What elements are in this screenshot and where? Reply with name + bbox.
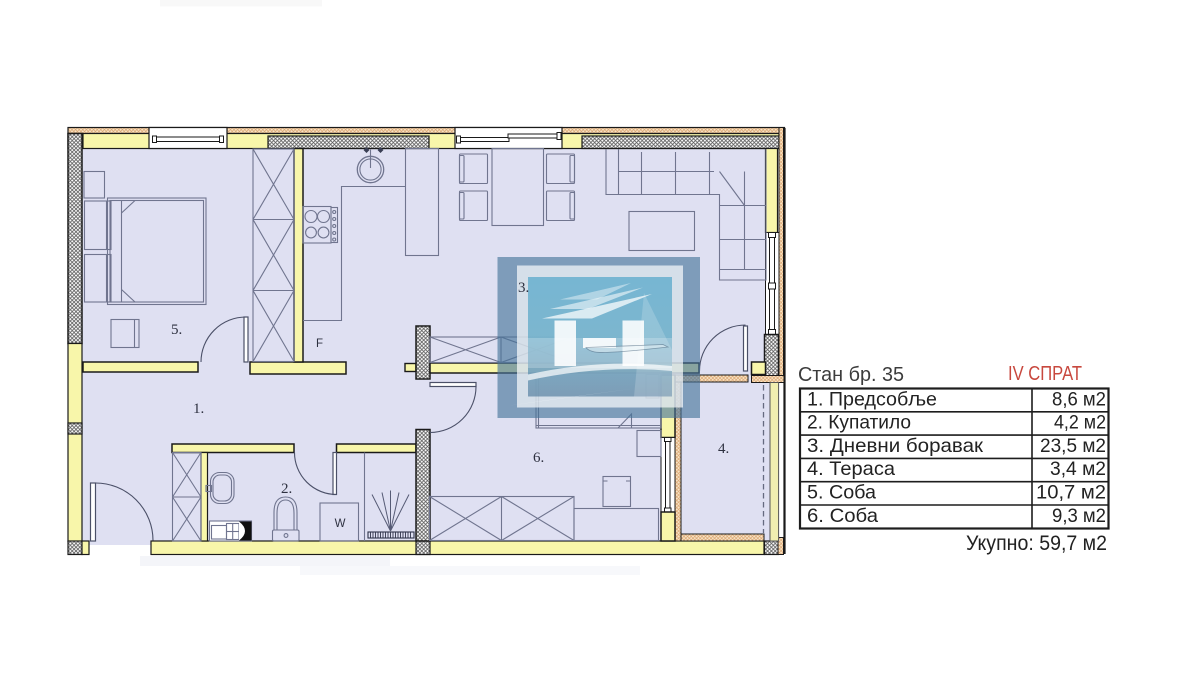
svg-text:8,6 м2: 8,6 м2: [1052, 388, 1106, 410]
svg-text:6.: 6.: [533, 450, 544, 466]
svg-text:Стан бр. 35: Стан бр. 35: [798, 363, 904, 386]
svg-text:F: F: [316, 338, 323, 350]
svg-text:9,3 м2: 9,3 м2: [1052, 505, 1106, 527]
svg-text:3.: 3.: [518, 280, 529, 296]
svg-text:23,5 м2: 23,5 м2: [1040, 435, 1106, 457]
svg-text:3. Дневни боравак: 3. Дневни боравак: [807, 435, 983, 457]
svg-text:4,2 м2: 4,2 м2: [1054, 412, 1106, 434]
svg-text:2.: 2.: [281, 481, 292, 497]
svg-text:W: W: [335, 518, 346, 530]
svg-text:Укупно: 59,7 м2: Укупно: 59,7 м2: [966, 532, 1107, 555]
svg-text:1. Предсобље: 1. Предсобље: [807, 388, 937, 410]
svg-text:3,4 м2: 3,4 м2: [1050, 458, 1106, 480]
svg-text:10,7 м2: 10,7 м2: [1036, 482, 1106, 504]
svg-text:5. Соба: 5. Соба: [807, 482, 876, 504]
svg-text:1.: 1.: [193, 401, 204, 417]
svg-text:2. Купатило: 2. Купатило: [807, 412, 911, 434]
svg-text:5.: 5.: [171, 322, 182, 338]
svg-text:4. Тераса: 4. Тераса: [807, 458, 895, 480]
svg-text:IV СПРАТ: IV СПРАТ: [1008, 363, 1082, 385]
svg-text:4.: 4.: [718, 441, 729, 457]
svg-text:6. Соба: 6. Соба: [807, 505, 878, 527]
